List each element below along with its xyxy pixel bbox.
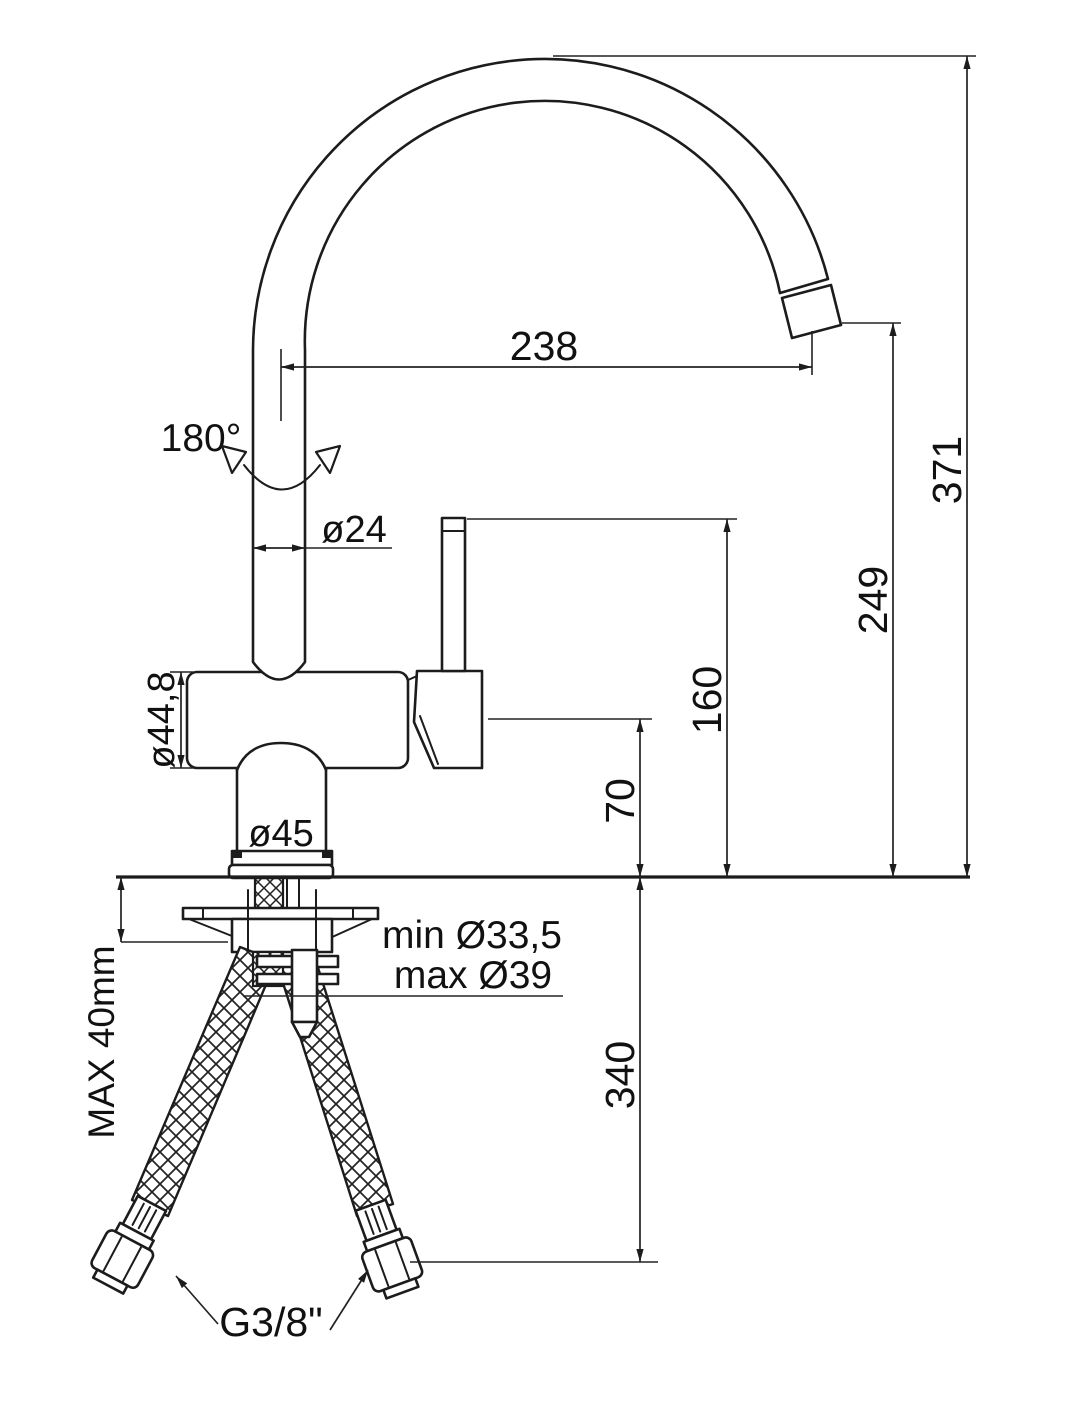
- swivel-arrowhead-right: [316, 446, 340, 473]
- handle-block: [414, 671, 482, 768]
- base-dim-tick: [233, 851, 242, 858]
- dim-label-body-diameter: ø44,8: [141, 671, 183, 768]
- center-tail-pipe: [292, 950, 317, 1022]
- dim-label-hose-drop: 340: [597, 1041, 643, 1109]
- dim-label-body-height: 70: [597, 778, 643, 824]
- note-thread: G3/8": [176, 1270, 368, 1345]
- hose-fitting-left: [85, 1191, 175, 1298]
- supply-hose-left: [132, 947, 276, 1216]
- washer-skirt-left: [189, 919, 237, 938]
- dim-label-reach: 238: [510, 323, 578, 369]
- dim-reach: 238: [281, 323, 812, 421]
- thread-label: G3/8": [219, 1299, 322, 1345]
- note-hole-min: min Ø33,5: [382, 914, 562, 957]
- threaded-shank-upper: [255, 878, 283, 909]
- faucet-body: [187, 59, 841, 878]
- technical-drawing-page: 238 371 249 160 70 340 MAX 40mm: [0, 0, 1080, 1410]
- note-swivel: 180°: [161, 417, 340, 490]
- note-hole-max: max Ø39: [394, 954, 552, 997]
- faucet-dimension-drawing: 238 371 249 160 70 340 MAX 40mm: [0, 0, 1080, 1410]
- dim-body-height: 70: [488, 719, 652, 877]
- gooseneck-spout: [253, 59, 828, 680]
- aerator-tip: [782, 285, 841, 338]
- horseshoe-washer: [183, 908, 378, 919]
- base-dim-tick: [322, 851, 331, 858]
- dim-label-deck-thickness: MAX 40mm: [81, 945, 122, 1138]
- handle-lever: [442, 518, 465, 671]
- dim-label-outlet-height: 249: [850, 566, 896, 634]
- dim-body-diameter: ø44,8: [141, 671, 193, 768]
- dim-label-spout-diameter: ø24: [321, 509, 386, 551]
- dim-outlet-height: 249: [842, 323, 901, 877]
- dim-label-base-diameter: ø45: [248, 813, 313, 855]
- washer-skirt-right: [330, 919, 372, 938]
- dim-label-lever-height: 160: [684, 666, 730, 734]
- dim-label-overall-height: 371: [924, 436, 970, 504]
